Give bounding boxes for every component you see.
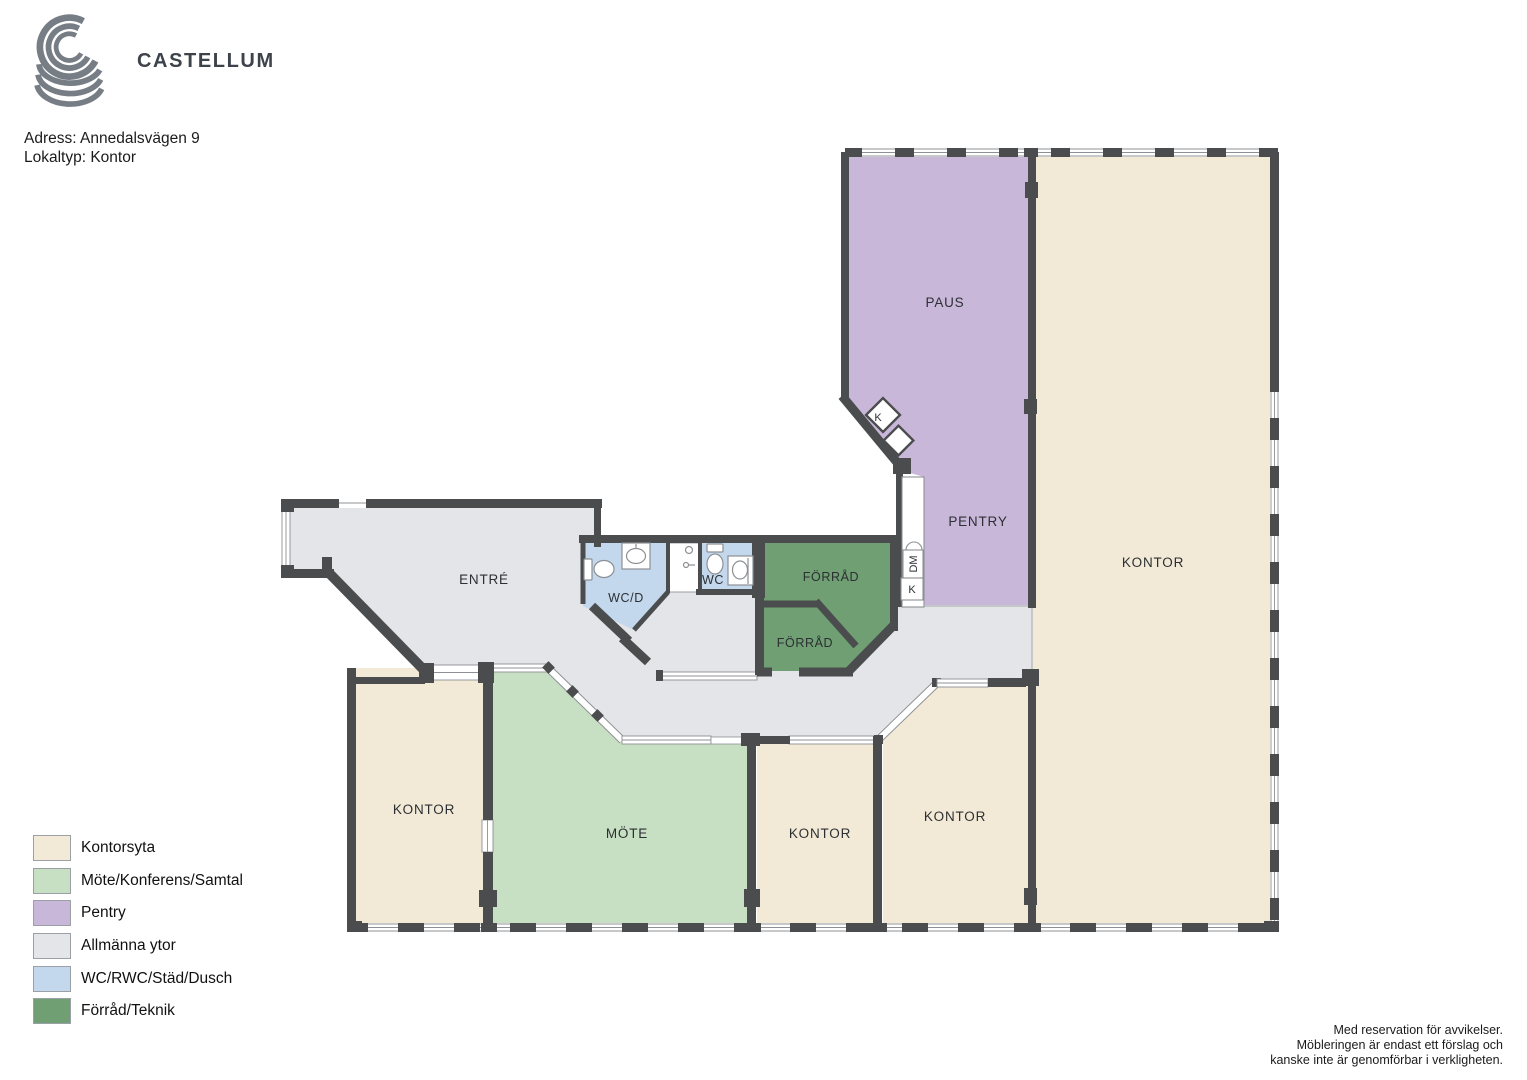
- floorplan-page: PAUS PENTRY KONTOR ENTRÉ WC/D WC FÖRRÅD …: [0, 0, 1527, 1080]
- label-kontor-s-right: KONTOR: [924, 809, 986, 824]
- legend-swatch-meeting: [33, 868, 71, 894]
- legend-swatch-common: [33, 933, 71, 959]
- label-dm: DM: [908, 555, 920, 572]
- disclaimer-line: Med reservation för avvikelser.: [1270, 1023, 1503, 1038]
- header: CASTELLUM: [20, 8, 275, 110]
- label-kontor-main: KONTOR: [1122, 555, 1184, 570]
- label-kontor-sw: KONTOR: [393, 802, 455, 817]
- legend-label: WC/RWC/Städ/Dusch: [81, 970, 232, 988]
- legend-label: Allmänna ytor: [81, 937, 176, 955]
- brand-name: CASTELLUM: [137, 50, 275, 73]
- label-forrad-small: FÖRRÅD: [777, 635, 833, 650]
- castellum-logo-icon: [20, 8, 115, 110]
- label-pentry: PENTRY: [948, 514, 1007, 529]
- legend: Kontorsyta Möte/Konferens/Samtal Pentry …: [33, 832, 243, 1028]
- label-counter-k: K: [908, 584, 916, 596]
- localtype-line: Lokaltyp: Kontor: [24, 148, 200, 167]
- room-kontor-sw: [351, 668, 490, 925]
- room-kontor-main: [1032, 152, 1272, 925]
- legend-item-kontorsyta: Kontorsyta: [33, 832, 243, 865]
- label-kontor-s-mid: KONTOR: [789, 826, 851, 841]
- disclaimer-line: Möbleringen är endast ett förslag och: [1270, 1038, 1503, 1053]
- label-forrad-big: FÖRRÅD: [803, 569, 859, 584]
- toilet-icon: [584, 559, 592, 580]
- legend-label: Pentry: [81, 904, 126, 922]
- room-vestibule: [668, 543, 700, 592]
- legend-swatch-storage: [33, 998, 71, 1024]
- toilet-icon: [707, 544, 723, 552]
- legend-swatch-office: [33, 835, 71, 861]
- key-icon: [684, 563, 689, 568]
- label-mote: MÖTE: [606, 826, 648, 841]
- legend-label: Kontorsyta: [81, 839, 155, 857]
- label-paus: PAUS: [926, 295, 965, 310]
- label-entre: ENTRÉ: [459, 572, 509, 587]
- legend-item-forrad: Förråd/Teknik: [33, 995, 243, 1028]
- label-wc: WC: [702, 573, 724, 587]
- legend-item-pentry: Pentry: [33, 897, 243, 930]
- disclaimer-line: kanske inte är genomförbar i verklighete…: [1270, 1053, 1503, 1068]
- legend-item-mote: Möte/Konferens/Samtal: [33, 865, 243, 898]
- address-block: Adress: Annedalsvägen 9 Lokaltyp: Kontor: [24, 129, 200, 167]
- address-line: Adress: Annedalsvägen 9: [24, 129, 200, 148]
- legend-item-allmanna: Allmänna ytor: [33, 930, 243, 963]
- legend-label: Förråd/Teknik: [81, 1002, 175, 1020]
- label-wcd: WC/D: [608, 591, 644, 605]
- legend-swatch-wc: [33, 966, 71, 992]
- door-knob-icon: [686, 547, 693, 554]
- legend-item-wc: WC/RWC/Städ/Dusch: [33, 962, 243, 995]
- disclaimer: Med reservation för avvikelser. Möblerin…: [1270, 1023, 1503, 1068]
- label-kitchen-k: K: [874, 412, 882, 424]
- legend-label: Möte/Konferens/Samtal: [81, 872, 243, 890]
- legend-swatch-pantry: [33, 900, 71, 926]
